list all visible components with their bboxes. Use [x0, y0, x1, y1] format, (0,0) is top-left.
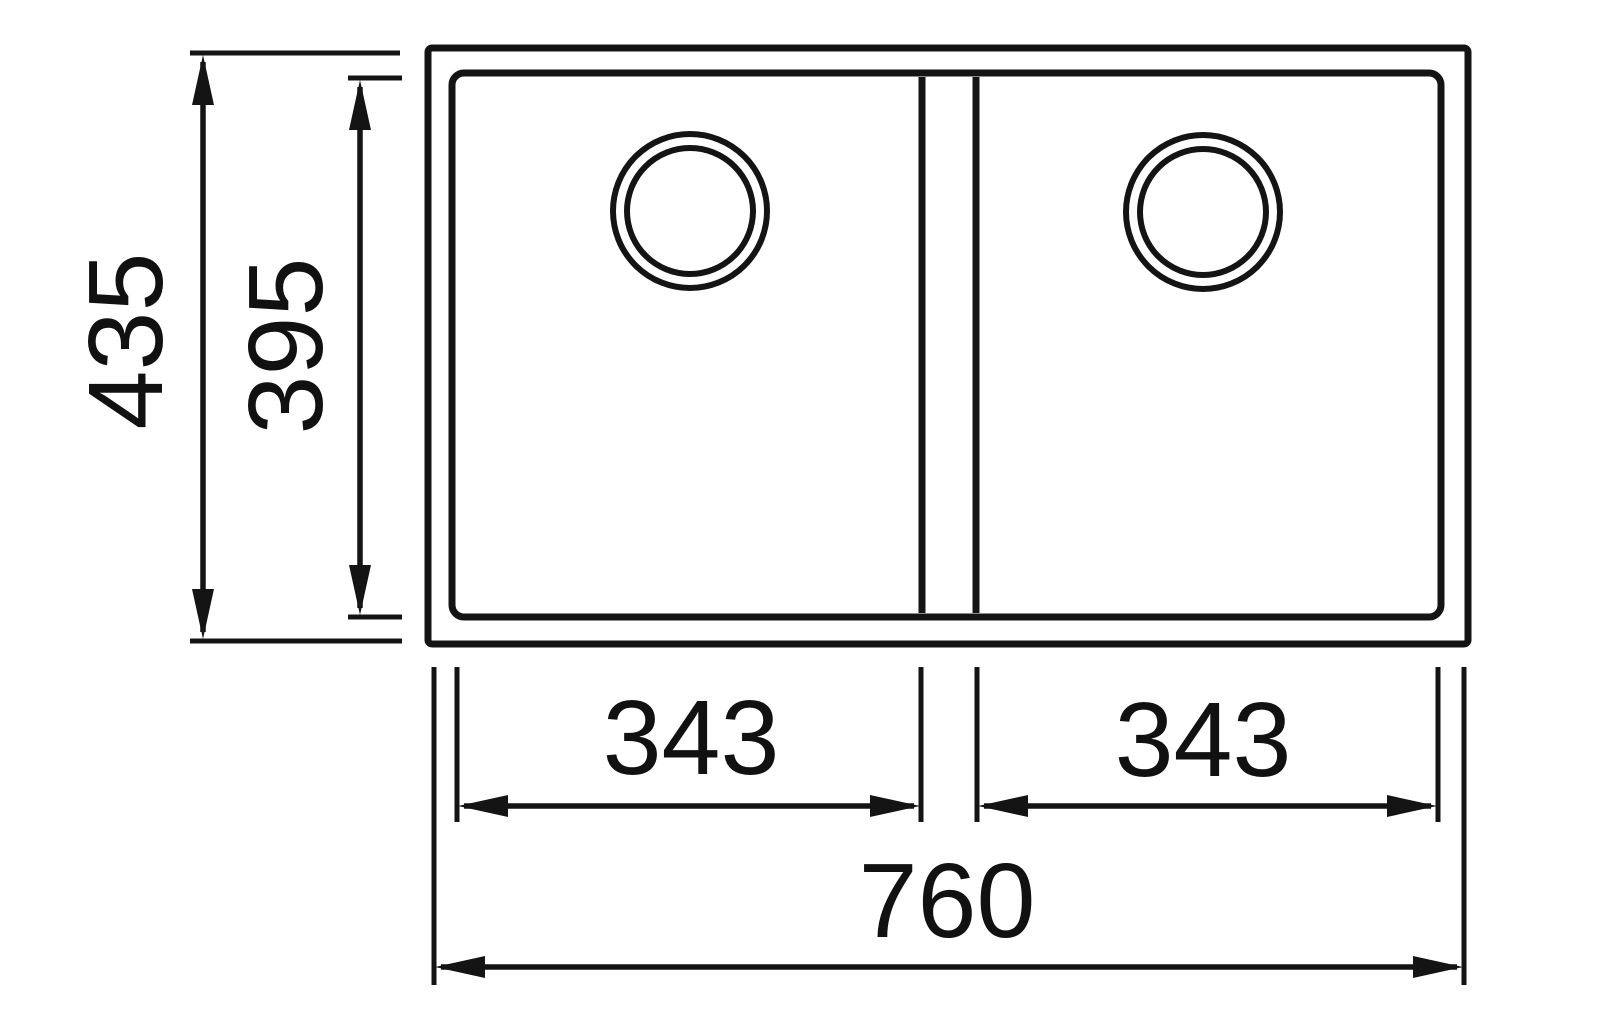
sink-inner-bowl-outline — [452, 73, 1441, 617]
dim-label-overall-height: 435 — [67, 253, 185, 430]
arrowhead-left-icon — [978, 795, 1028, 817]
right-drain-outer-circle — [1126, 135, 1280, 289]
sink-dimension-diagram: 435 395 343 343 — [0, 0, 1600, 1033]
arrowhead-up-icon — [192, 55, 214, 105]
technical-drawing-svg: 435 395 343 343 — [0, 0, 1600, 1033]
arrowhead-right-icon — [1413, 956, 1463, 978]
dimension-left-bowl-width: 343 — [457, 667, 921, 822]
arrowhead-right-icon — [870, 795, 920, 817]
sink-outline-group — [428, 48, 1468, 644]
dimension-bowl-depth: 395 — [227, 78, 402, 617]
arrowhead-left-icon — [458, 795, 508, 817]
dimension-right-bowl-width: 343 — [977, 667, 1438, 822]
left-drain-outer-circle — [613, 134, 767, 288]
right-drain-inner-circle — [1140, 149, 1266, 275]
arrowhead-down-icon — [349, 565, 371, 615]
left-drain-inner-circle — [627, 148, 753, 274]
arrowhead-right-icon — [1387, 795, 1437, 817]
arrowhead-up-icon — [349, 80, 371, 130]
sink-outer-rim-outline — [428, 48, 1468, 644]
arrowhead-down-icon — [192, 589, 214, 639]
dim-label-bowl-depth: 395 — [227, 258, 345, 435]
dim-label-left-bowl-width: 343 — [603, 679, 780, 797]
arrowhead-left-icon — [435, 956, 485, 978]
dim-label-overall-width: 760 — [859, 842, 1036, 960]
dim-label-right-bowl-width: 343 — [1115, 681, 1292, 799]
dimension-overall-width: 760 — [434, 667, 1464, 985]
